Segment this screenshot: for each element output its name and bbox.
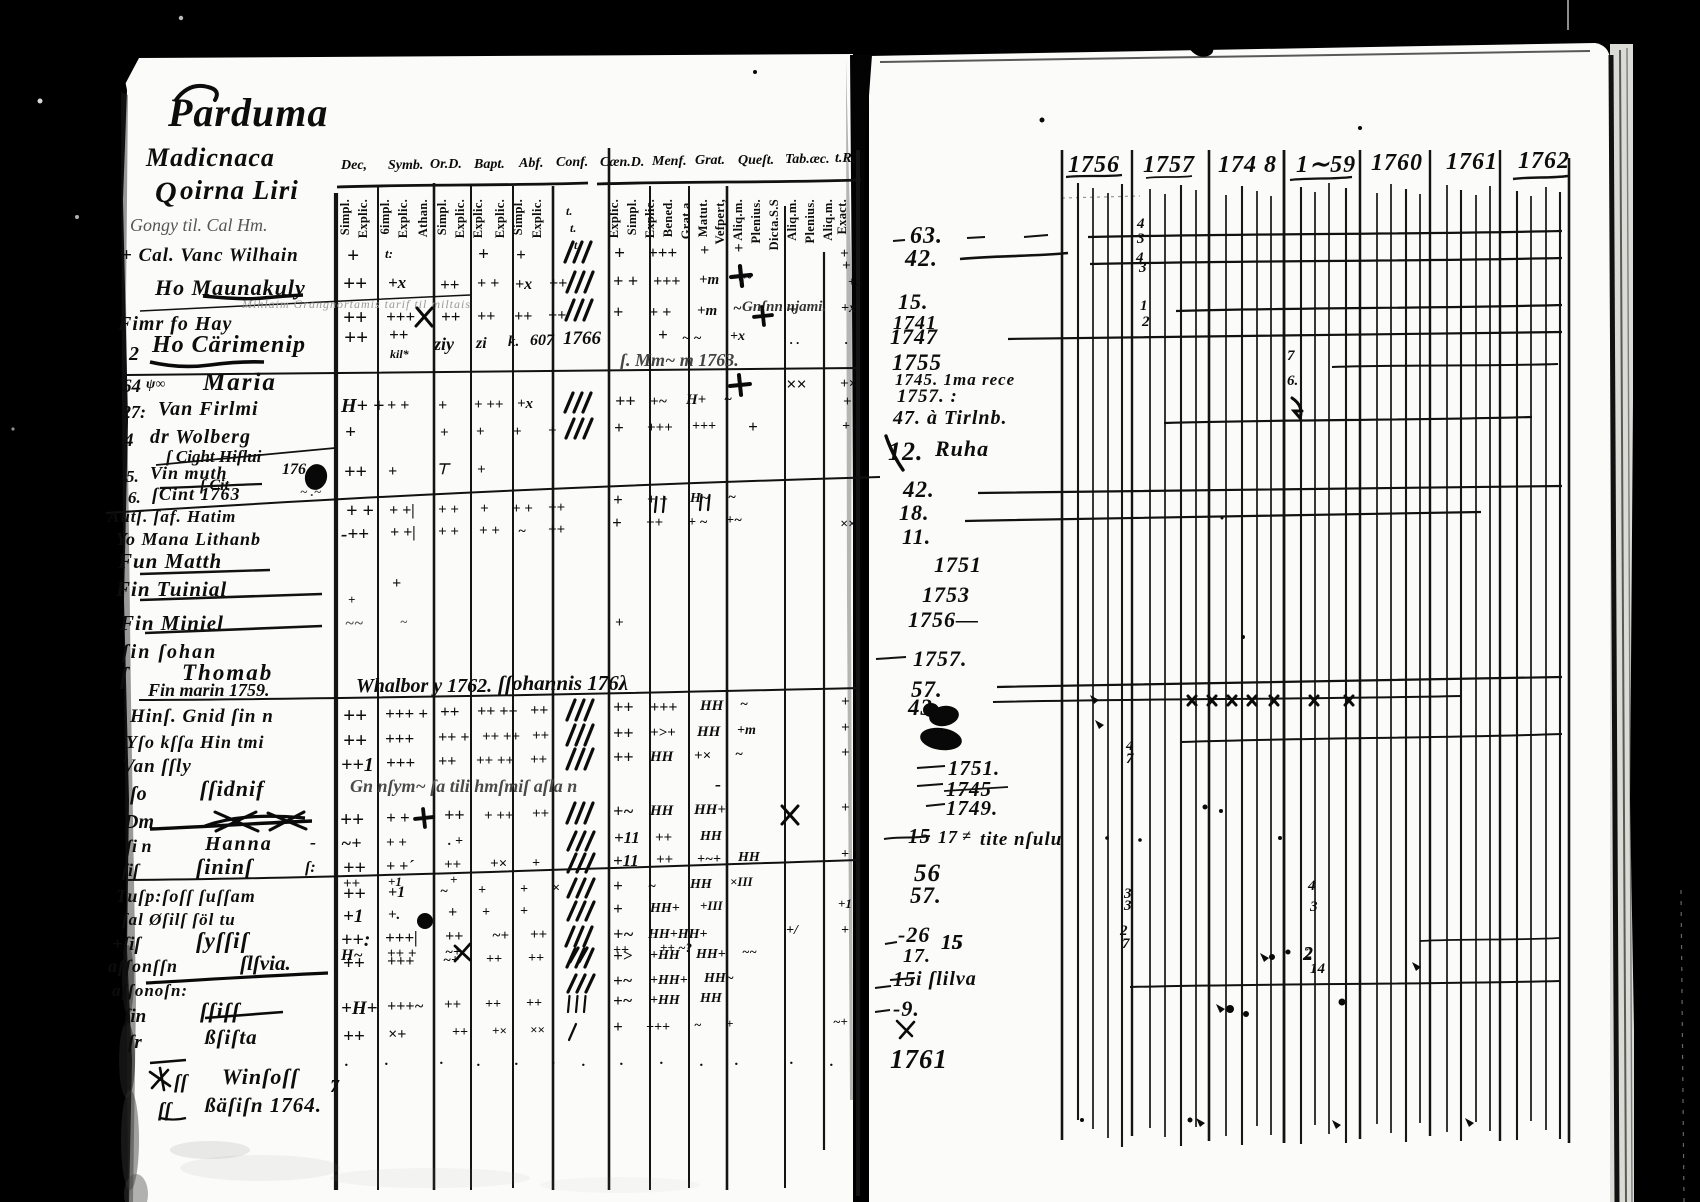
- svg-text:HH+: HH+: [695, 947, 726, 962]
- svg-text:++: ++: [344, 461, 367, 483]
- svg-text:+: +: [613, 876, 623, 895]
- svg-text:5.: 5.: [126, 467, 139, 486]
- svg-text:++: ++: [444, 997, 461, 1013]
- svg-text:17: 17: [938, 827, 958, 847]
- svg-text:++: ++: [438, 753, 456, 770]
- svg-text:1756—: 1756—: [908, 607, 979, 632]
- svg-text:7: 7: [1122, 936, 1130, 952]
- svg-text:++ ++: ++ ++: [476, 753, 514, 769]
- svg-text:++: ++: [340, 807, 364, 831]
- svg-text:++: ++: [530, 927, 547, 943]
- svg-text:ſr: ſr: [128, 1032, 142, 1053]
- svg-text:Winſoſſ: Winſoſſ: [222, 1064, 301, 1089]
- svg-text:Conf.: Conf.: [556, 155, 588, 170]
- svg-text:HH: HH: [649, 749, 675, 765]
- svg-text:++: ++: [613, 747, 634, 767]
- svg-text:1757.: 1757.: [913, 646, 968, 671]
- svg-text:.: .: [385, 1053, 389, 1069]
- svg-text:Van ſſly: Van ſſly: [122, 756, 192, 777]
- svg-text:+ſiſ: +ſiſ: [112, 934, 142, 955]
- svg-text:.: .: [620, 1053, 624, 1069]
- svg-text:ſal Øſilſ ſöl tu: ſal Øſilſ ſöl tu: [122, 910, 236, 929]
- svg-text:1753: 1753: [922, 582, 970, 607]
- svg-text:+H+: +H+: [341, 998, 377, 1019]
- svg-text:+ +: + +: [613, 271, 638, 291]
- svg-text:.: .: [345, 1054, 349, 1070]
- svg-text:Athan.: Athan.: [416, 199, 430, 237]
- svg-text:Explic.: Explic.: [530, 199, 544, 238]
- svg-text:1∼59: 1∼59: [1296, 152, 1356, 178]
- svg-text:Ruha: Ruha: [934, 436, 989, 461]
- svg-text:ſſidnif: ſſidnif: [200, 776, 266, 801]
- svg-text:+: +: [613, 490, 623, 509]
- svg-text:18.: 18.: [899, 500, 930, 525]
- svg-text:+++: +++: [647, 420, 673, 436]
- svg-text:++ ++: ++ ++: [477, 703, 517, 720]
- svg-text:+: +: [478, 244, 489, 265]
- svg-text:Madicnaca: Madicnaca: [145, 143, 275, 172]
- svg-text:H+: H+: [685, 392, 706, 408]
- svg-text:+: +: [520, 882, 528, 897]
- svg-text:3: 3: [1309, 899, 1318, 915]
- svg-text:++: ++: [613, 723, 634, 743]
- svg-text:15: 15: [908, 824, 931, 848]
- svg-text:××: ××: [786, 374, 807, 394]
- svg-text:+: +: [476, 424, 485, 440]
- svg-text:.: .: [735, 1053, 739, 1069]
- svg-text:+ +: + +: [346, 500, 374, 522]
- svg-text:+: +: [348, 592, 355, 607]
- svg-text:7: 7: [1287, 348, 1295, 364]
- svg-text:++: ++: [485, 997, 501, 1012]
- svg-text:+: +: [615, 615, 624, 631]
- svg-text:H+ +: H+ +: [340, 395, 384, 417]
- svg-text:Hanna: Hanna: [204, 833, 273, 855]
- svg-text:+: +: [841, 847, 849, 862]
- svg-text:++: ++: [655, 830, 672, 846]
- svg-text:+~: +~: [613, 801, 634, 821]
- svg-text:+m: +m: [697, 303, 717, 319]
- svg-text:-9.: -9.: [893, 996, 920, 1021]
- svg-text:+HH: +HH: [650, 993, 681, 1008]
- svg-text:++: ++: [343, 883, 366, 905]
- svg-text:Matut.: Matut.: [696, 199, 710, 237]
- svg-text:Cæn.D.: Cæn.D.: [600, 155, 644, 170]
- svg-text:+~+: +~+: [697, 852, 721, 867]
- svg-text:+/: +/: [786, 923, 799, 938]
- svg-text:-: -: [310, 832, 316, 852]
- svg-text:HH+: HH+: [693, 802, 726, 818]
- svg-text:+: +: [614, 418, 624, 437]
- svg-text:+×: +×: [840, 376, 857, 392]
- svg-text:Whalbor y 1762.: Whalbor y 1762.: [356, 675, 492, 697]
- svg-text:1761: 1761: [1446, 149, 1498, 175]
- svg-text:+m: +m: [737, 723, 756, 738]
- svg-text:.: .: [845, 332, 848, 347]
- svg-text:+: +: [734, 240, 743, 257]
- svg-text:+++ +: +++ +: [385, 704, 428, 723]
- svg-text:+: +: [726, 1016, 733, 1031]
- svg-text:+: +: [388, 463, 397, 480]
- svg-text:Simpl.: Simpl.: [435, 199, 449, 235]
- svg-text:~+: ~+: [833, 1014, 848, 1029]
- svg-text:Grat.a.: Grat.a.: [679, 199, 693, 239]
- svg-text:1756: 1756: [1068, 152, 1120, 178]
- svg-text:~: ~: [400, 614, 408, 629]
- svg-text:+++: +++: [386, 307, 415, 326]
- svg-text:~: ~: [648, 879, 656, 894]
- svg-text:+ +|: + +|: [390, 524, 416, 541]
- svg-text:Plenius.: Plenius.: [803, 199, 817, 243]
- svg-text:3: 3: [1136, 231, 1145, 247]
- svg-text:+ +´: + +´: [386, 858, 414, 875]
- svg-text:++: ++: [486, 952, 502, 967]
- svg-text:++: ++: [444, 805, 465, 825]
- svg-text:HH: HH: [737, 850, 761, 865]
- svg-text:++ +: ++ +: [438, 729, 469, 746]
- svg-text:++: ++: [344, 325, 368, 349]
- svg-text:+x: +x: [388, 273, 407, 292]
- svg-text:+: +: [614, 243, 625, 264]
- svg-text:+: +: [520, 904, 528, 919]
- svg-text:2: 2: [128, 343, 139, 365]
- svg-text:aſſonſſn: aſſonſſn: [108, 956, 178, 976]
- svg-text:HH: HH: [649, 803, 675, 819]
- svg-text:Ho Cärimenip: Ho Cärimenip: [151, 332, 306, 358]
- svg-text:ſ:: ſ:: [305, 859, 316, 876]
- svg-text:~~: ~~: [345, 615, 363, 632]
- svg-text:~+: ~+: [341, 833, 362, 853]
- svg-text:++: ++: [441, 307, 460, 326]
- svg-text:4: 4: [1136, 216, 1145, 232]
- svg-text:HH: HH: [699, 991, 723, 1006]
- svg-text:ſſiſſ: ſſiſſ: [200, 998, 242, 1023]
- svg-text:ſ. Mm~ m 1763.: ſ. Mm~ m 1763.: [620, 350, 739, 370]
- svg-text:ſiſ: ſiſ: [122, 860, 141, 880]
- svg-text:+ ++: + ++: [474, 397, 503, 413]
- svg-text:+×: +×: [492, 1023, 507, 1038]
- svg-text:+~: +~: [613, 971, 633, 990]
- svg-text:+: +: [843, 394, 852, 410]
- svg-text:~: ~: [735, 747, 743, 762]
- svg-text:+ ~: + ~: [688, 515, 707, 530]
- svg-text:~+: ~+: [443, 953, 459, 968]
- svg-text:ſo: ſo: [130, 783, 147, 805]
- svg-text:Aliq.m.: Aliq.m.: [785, 199, 799, 241]
- svg-text:+ +: + +: [386, 835, 407, 851]
- svg-text:Van Firlmi: Van Firlmi: [158, 398, 259, 420]
- svg-text:+: +: [841, 745, 850, 761]
- svg-text:+: +: [842, 258, 851, 274]
- svg-text:+~: +~: [613, 924, 634, 944]
- svg-text:++: ++: [526, 996, 542, 1011]
- svg-text:15.: 15.: [898, 289, 929, 314]
- svg-text:.: .: [440, 1052, 444, 1068]
- svg-text:++: ++: [530, 752, 547, 768]
- svg-text:++: ++: [532, 728, 549, 744]
- svg-text:42.: 42.: [904, 246, 938, 272]
- svg-text:+++: +++: [653, 273, 680, 290]
- svg-text:17.: 17.: [903, 945, 931, 967]
- svg-text:Dec,: Dec,: [340, 158, 367, 173]
- svg-text:oirna Liri: oirna Liri: [180, 175, 299, 205]
- svg-text:+ +|: + +|: [389, 502, 415, 519]
- svg-text:+x: +x: [730, 329, 745, 344]
- svg-text:+x: +x: [517, 396, 534, 412]
- svg-text:.: .: [660, 1052, 664, 1068]
- svg-text:++: ++: [444, 857, 461, 873]
- svg-text:+: +: [841, 800, 850, 816]
- svg-text:~: ~: [733, 301, 742, 317]
- svg-text:Fin marin 1759.: Fin marin 1759.: [147, 680, 270, 700]
- svg-text:Abf.: Abf.: [518, 156, 544, 171]
- svg-text:+++: +++: [648, 243, 677, 262]
- svg-text:Maria: Maria: [202, 369, 277, 396]
- svg-text:607: 607: [530, 332, 555, 349]
- svg-text:++: ++: [440, 702, 459, 721]
- svg-text:Parduma: Parduma: [167, 90, 328, 135]
- svg-text:+1: +1: [838, 896, 852, 911]
- svg-text:ſſohannis 176λ: ſſohannis 176λ: [498, 671, 628, 695]
- svg-text:Q: Q: [155, 176, 177, 209]
- svg-text:~: ~: [440, 884, 448, 899]
- svg-text:Yſo kſſa Hin tmi: Yſo kſſa Hin tmi: [126, 732, 265, 752]
- svg-text:ψ∞: ψ∞: [146, 377, 165, 392]
- svg-text:7: 7: [1126, 751, 1134, 767]
- svg-text:+: +: [347, 243, 359, 267]
- svg-text:Hinſ. Gnid ſin n: Hinſ. Gnid ſin n: [129, 706, 274, 727]
- svg-text:+ +: + +: [387, 397, 409, 414]
- svg-text:+1: +1: [343, 906, 363, 927]
- svg-text:Gnſnn njami.: Gnſnn njami.: [742, 299, 826, 315]
- svg-text:×+: ×+: [388, 1026, 406, 1043]
- svg-text:.: .: [515, 1053, 519, 1069]
- svg-text:~~: ~~: [742, 944, 757, 959]
- svg-text:1757. :: 1757. :: [897, 386, 958, 407]
- svg-text:~ .~: ~ .~: [300, 484, 322, 499]
- svg-text:~ ~: ~ ~: [682, 331, 701, 346]
- svg-text:≠: ≠: [962, 828, 972, 845]
- svg-text:1749.: 1749.: [946, 796, 998, 820]
- svg-text:+: +: [841, 923, 849, 938]
- svg-text:+: +: [613, 899, 623, 918]
- svg-text:+: +: [440, 425, 449, 441]
- svg-text:+11: +11: [613, 851, 639, 870]
- svg-text:+: +: [392, 575, 401, 592]
- svg-text:6impl.: 6impl.: [378, 199, 392, 235]
- svg-text:6.: 6.: [128, 488, 141, 507]
- svg-text:++: ++: [548, 522, 565, 538]
- svg-text:+.: +.: [388, 907, 400, 923]
- svg-text:+11: +11: [614, 828, 640, 847]
- svg-text:Tuſp:ſoſſ ſuſſam: Tuſp:ſoſſ ſuſſam: [116, 886, 256, 906]
- svg-text:Explic.: Explic.: [356, 199, 370, 238]
- svg-text:+: +: [841, 720, 850, 736]
- svg-text:ßſiſta: ßſiſta: [204, 1025, 258, 1049]
- svg-text:+: +: [842, 419, 850, 434]
- svg-text:~: ~: [694, 1017, 702, 1032]
- svg-text:-26: -26: [898, 922, 930, 947]
- svg-text:HH: HH: [696, 724, 722, 740]
- svg-text:.: .: [700, 1054, 704, 1070]
- svg-text:zi: zi: [475, 335, 487, 352]
- svg-text:1751: 1751: [934, 552, 982, 577]
- svg-text:42.: 42.: [902, 477, 935, 502]
- svg-text:. +: . +: [448, 834, 463, 849]
- svg-text:174 8: 174 8: [1218, 152, 1277, 178]
- svg-text:176: 176: [282, 461, 306, 478]
- svg-text:ſlſvia.: ſlſvia.: [240, 951, 291, 975]
- svg-text:Grat.: Grat.: [695, 153, 725, 168]
- svg-text:+: +: [700, 242, 709, 259]
- svg-text:Aliq.m.: Aliq.m.: [731, 199, 745, 241]
- svg-text:4: 4: [123, 430, 134, 451]
- svg-text:4: 4: [1307, 878, 1316, 894]
- svg-text:×: ×: [552, 881, 560, 896]
- svg-text:+: +: [516, 245, 526, 264]
- svg-text:+ ++: + ++: [484, 808, 513, 824]
- svg-text:+: +: [482, 905, 490, 920]
- svg-text:Simpl.: Simpl.: [338, 199, 352, 235]
- svg-text:+: +: [532, 856, 540, 871]
- svg-text:Dicta.S.S: Dicta.S.S: [767, 199, 781, 250]
- svg-text:Bapt.: Bapt.: [473, 157, 505, 172]
- svg-text:Tab.æc.: Tab.æc.: [785, 152, 830, 167]
- svg-text:++: ++: [656, 852, 673, 868]
- svg-text:.: .: [477, 1054, 481, 1070]
- svg-text:+: +: [448, 904, 457, 921]
- svg-text:+x: +x: [515, 276, 532, 293]
- svg-text:Explic.: Explic.: [453, 199, 467, 238]
- svg-text:1762: 1762: [1518, 148, 1570, 174]
- svg-text:+×: +×: [490, 856, 507, 872]
- svg-text:~: ~: [740, 697, 748, 712]
- svg-text:+III: +III: [700, 898, 724, 913]
- svg-text:Dm: Dm: [123, 811, 154, 833]
- svg-text:++: ++: [440, 275, 459, 294]
- svg-text:ſi n: ſi n: [126, 836, 152, 856]
- svg-text:++: ++: [528, 951, 544, 966]
- svg-text:++: ++: [613, 697, 634, 717]
- svg-text:+++: +++: [385, 729, 414, 748]
- svg-text:++: ++: [615, 391, 636, 411]
- svg-text:tite nſulu: tite nſulu: [980, 829, 1062, 850]
- svg-text:6.: 6.: [1287, 373, 1298, 389]
- svg-text:HH+: HH+: [649, 901, 680, 916]
- svg-text:t.: t.: [566, 204, 572, 218]
- svg-text:+: +: [438, 397, 447, 414]
- svg-text:Bened.: Bened.: [661, 199, 675, 237]
- svg-text:Gongy til. Cal Hm.: Gongy til. Cal Hm.: [130, 215, 268, 235]
- svg-text:+HH+: +HH+: [650, 973, 688, 988]
- svg-text:.: .: [790, 1052, 794, 1068]
- svg-text:+++~: +++~: [387, 998, 423, 1015]
- svg-text:ſſ: ſſ: [174, 1071, 190, 1093]
- svg-text:+: +: [477, 462, 486, 478]
- svg-text:Simpl.: Simpl.: [625, 199, 639, 235]
- svg-text:HH: HH: [699, 698, 725, 714]
- svg-text:+++: +++: [386, 753, 415, 772]
- svg-text:Explic.: Explic.: [493, 199, 507, 238]
- svg-text:+×: +×: [694, 748, 711, 764]
- svg-text:-++: -++: [341, 524, 369, 545]
- svg-text:-: -: [715, 774, 721, 794]
- svg-text:+ Cal. Vanc Wilhain: + Cal. Vanc Wilhain: [121, 245, 299, 266]
- svg-text:++: ++: [477, 308, 495, 325]
- svg-text:+ +: + +: [512, 501, 533, 517]
- svg-text:Fun Matth: Fun Matth: [117, 549, 222, 573]
- svg-text:+ +: + +: [386, 808, 410, 827]
- svg-text:t.R.: t.R.: [835, 151, 855, 166]
- svg-text:3: 3: [1138, 260, 1147, 276]
- svg-text:Plenius.: Plenius.: [749, 199, 763, 243]
- svg-text:11.: 11.: [902, 524, 931, 549]
- svg-text:ſininſ: ſininſ: [196, 854, 255, 879]
- svg-text:++: ++: [343, 271, 367, 295]
- svg-text:++: ++: [530, 702, 548, 719]
- svg-text:Yo Mana Lithanb: Yo Mana Lithanb: [116, 529, 261, 549]
- svg-text:+ +: + +: [647, 492, 668, 508]
- svg-text:++: ++: [343, 953, 365, 974]
- svg-text:H~: H~: [689, 491, 709, 506]
- svg-text:Menf.: Menf.: [651, 154, 687, 169]
- svg-text:++: ++: [646, 515, 663, 531]
- svg-text:+: +: [658, 325, 668, 344]
- svg-text:++: ++: [343, 703, 367, 727]
- svg-text:++: ++: [452, 1025, 468, 1040]
- svg-text:+: +: [478, 883, 486, 898]
- svg-text:~+: ~+: [492, 928, 509, 944]
- svg-text:++: ++: [549, 275, 567, 292]
- svg-text:+~: +~: [726, 513, 742, 528]
- svg-text:.: .: [552, 1052, 556, 1068]
- svg-text:Vefpert,: Vefpert,: [713, 199, 727, 244]
- svg-text:Queſt.: Queſt.: [738, 153, 774, 168]
- svg-text:Exact.: Exact.: [835, 199, 849, 234]
- svg-text:64: 64: [122, 376, 141, 397]
- svg-text:1766: 1766: [563, 328, 602, 349]
- svg-text:+: +: [513, 424, 522, 440]
- svg-text:HH: HH: [699, 829, 723, 844]
- svg-text:++: ++: [343, 728, 367, 752]
- svg-text:t.: t.: [570, 221, 576, 235]
- svg-text:+ +: + +: [479, 523, 500, 539]
- svg-text:+: +: [548, 423, 557, 439]
- svg-text:+++: +++: [387, 953, 414, 970]
- svg-text:1760: 1760: [1371, 150, 1423, 176]
- svg-text:27:: 27:: [121, 402, 146, 422]
- svg-text:+.: +.: [848, 274, 859, 289]
- svg-text:Explic.: Explic.: [471, 199, 485, 238]
- svg-text:+: +: [613, 1017, 623, 1036]
- svg-text:+++|: +++|: [385, 928, 418, 947]
- svg-text:dr Wolberg: dr Wolberg: [150, 426, 251, 448]
- svg-text:××: ××: [840, 517, 856, 532]
- svg-text:57.: 57.: [910, 883, 942, 908]
- svg-text:Autſ. ſaf. Hatim: Autſ. ſaf. Hatim: [107, 507, 236, 526]
- svg-text:+++: +++: [692, 419, 716, 434]
- svg-text:1: 1: [1140, 298, 1148, 314]
- svg-text:ſin: ſin: [124, 1006, 146, 1027]
- svg-text:××: ××: [530, 1022, 545, 1037]
- svg-text:+ +: + +: [438, 502, 459, 518]
- svg-text:HH: HH: [689, 877, 713, 892]
- svg-text:Or.D.: Or.D.: [430, 157, 462, 172]
- svg-text:++: ++: [389, 325, 408, 344]
- svg-text:i ſlilva: i ſlilva: [916, 968, 977, 990]
- svg-text:~: ~: [728, 490, 736, 505]
- svg-text:++: ++: [514, 308, 532, 325]
